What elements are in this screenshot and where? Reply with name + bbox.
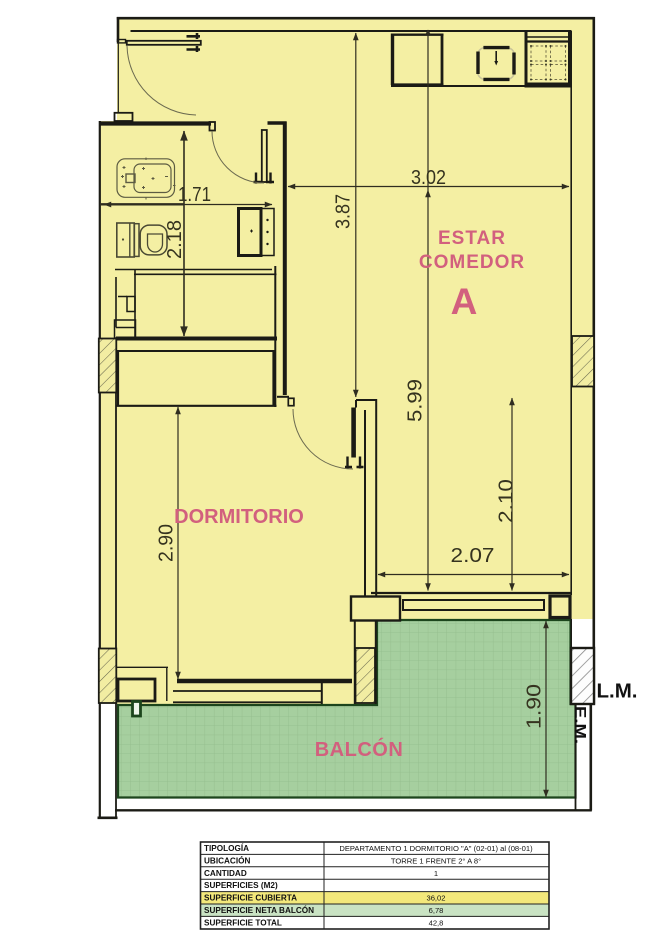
svg-text:A: A bbox=[451, 281, 478, 322]
svg-text:3.87: 3.87 bbox=[333, 194, 355, 229]
svg-text:DORMITORIO: DORMITORIO bbox=[174, 506, 304, 528]
svg-text:3.02: 3.02 bbox=[411, 167, 446, 189]
svg-text:2.10: 2.10 bbox=[496, 479, 518, 523]
svg-text:UBICACIÓN: UBICACIÓN bbox=[204, 854, 250, 865]
svg-text:2.90: 2.90 bbox=[156, 524, 178, 562]
svg-text:1.90: 1.90 bbox=[524, 684, 546, 729]
svg-text:ESTAR: ESTAR bbox=[438, 228, 506, 249]
svg-text:CANTIDAD: CANTIDAD bbox=[204, 869, 247, 878]
svg-text:2.07: 2.07 bbox=[451, 545, 495, 567]
svg-text:BALCÓN: BALCÓN bbox=[315, 737, 404, 761]
svg-text:36,02: 36,02 bbox=[426, 894, 445, 903]
svg-text:42,8: 42,8 bbox=[429, 918, 444, 927]
svg-text:SUPERFICIE NETA BALCÓN: SUPERFICIE NETA BALCÓN bbox=[204, 904, 314, 915]
svg-text:1: 1 bbox=[434, 869, 438, 878]
svg-text:SUPERFICIE CUBIERTA: SUPERFICIE CUBIERTA bbox=[204, 894, 297, 903]
svg-text:L.M.: L.M. bbox=[597, 681, 638, 703]
svg-text:TIPOLOGÍA: TIPOLOGÍA bbox=[204, 843, 249, 853]
svg-text:DEPARTAMENTO 1 DORMITORIO "A": DEPARTAMENTO 1 DORMITORIO "A" (02-01) al… bbox=[339, 844, 533, 853]
svg-text:5.99: 5.99 bbox=[405, 379, 427, 422]
svg-text:COMEDOR: COMEDOR bbox=[419, 252, 525, 273]
svg-text:E.M.: E.M. bbox=[571, 706, 588, 744]
svg-text:SUPERFICIE TOTAL: SUPERFICIE TOTAL bbox=[204, 918, 282, 927]
svg-text:TORRE 1 FRENTE 2° A 8°: TORRE 1 FRENTE 2° A 8° bbox=[391, 856, 481, 865]
svg-text:6,78: 6,78 bbox=[429, 906, 444, 915]
svg-text:SUPERFICIES (M2): SUPERFICIES (M2) bbox=[204, 881, 278, 890]
svg-text:2.18: 2.18 bbox=[164, 220, 186, 259]
svg-text:1.71: 1.71 bbox=[178, 184, 211, 206]
